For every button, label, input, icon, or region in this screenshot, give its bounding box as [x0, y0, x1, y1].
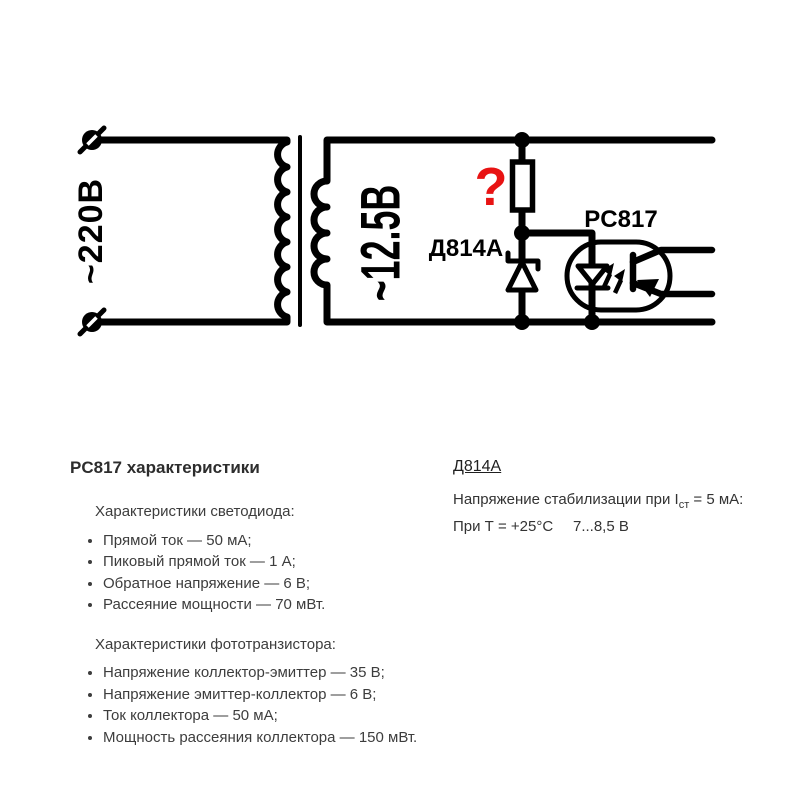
- list-item: Рассеяние мощности — 70 мВт.: [103, 594, 430, 616]
- junction-dot: [514, 225, 530, 241]
- secondary-voltage-label: ~12.5В: [348, 185, 411, 302]
- pc817-characteristics-section: PC817 характеристики Характеристики свет…: [70, 458, 430, 748]
- resistor-symbol: [513, 162, 533, 210]
- stabilization-voltage-line: Напряжение стабилизации при Iст = 5 мА:: [453, 489, 753, 516]
- d814a-section-title: Д814А: [453, 458, 753, 476]
- junction-dot: [514, 314, 530, 330]
- primary-winding-wire: [101, 140, 287, 322]
- primary-voltage-label: ~220В: [72, 178, 110, 284]
- led-characteristics-heading: Характеристики светодиода:: [95, 501, 430, 523]
- phototransistor-characteristics-list: Напряжение коллектор-эмиттер — 35 В; Нап…: [70, 662, 430, 748]
- current-subscript: ст: [679, 499, 690, 511]
- led-characteristics-list: Прямой ток — 50 мА; Пиковый прямой ток —…: [70, 530, 430, 616]
- list-item: Мощность рассеяния коллектора — 150 мВт.: [103, 727, 430, 749]
- stabilization-value: = 5 мА:: [689, 491, 743, 508]
- pc817-section-title: PC817 характеристики: [70, 458, 430, 478]
- junction-dot: [584, 314, 600, 330]
- question-mark-label: ?: [475, 157, 508, 217]
- list-item: Пиковый прямой ток — 1 А;: [103, 551, 430, 573]
- list-item: Прямой ток — 50 мА;: [103, 530, 430, 552]
- junction-dot: [514, 132, 530, 148]
- list-item: Ток коллектора — 50 мА;: [103, 705, 430, 727]
- d814a-section: Д814А Напряжение стабилизации при Iст = …: [453, 458, 753, 537]
- condition-value: 7...8,5 В: [573, 516, 629, 537]
- optocoupler-symbol: [522, 233, 712, 322]
- circuit-schematic: ~220В ~12.5В ? Д814А PC817: [0, 0, 800, 440]
- optocoupler-name-label: PC817: [584, 206, 657, 233]
- temperature-condition-line: При Т = +25°С 7...8,5 В: [453, 516, 753, 537]
- zener-name-label: Д814А: [429, 235, 503, 262]
- terminal-icon: [80, 128, 104, 152]
- condition-label: При Т = +25°С: [453, 516, 573, 537]
- phototransistor-characteristics-heading: Характеристики фототранзистора:: [95, 634, 430, 656]
- list-item: Напряжение эмиттер-коллектор — 6 В;: [103, 684, 430, 706]
- zener-diode-symbol: [508, 233, 538, 322]
- list-item: Обратное напряжение — 6 В;: [103, 573, 430, 595]
- stabilization-text: Напряжение стабилизации при I: [453, 491, 679, 508]
- terminal-icon: [80, 310, 104, 334]
- list-item: Напряжение коллектор-эмиттер — 35 В;: [103, 662, 430, 684]
- zener-anode-triangle: [508, 262, 536, 290]
